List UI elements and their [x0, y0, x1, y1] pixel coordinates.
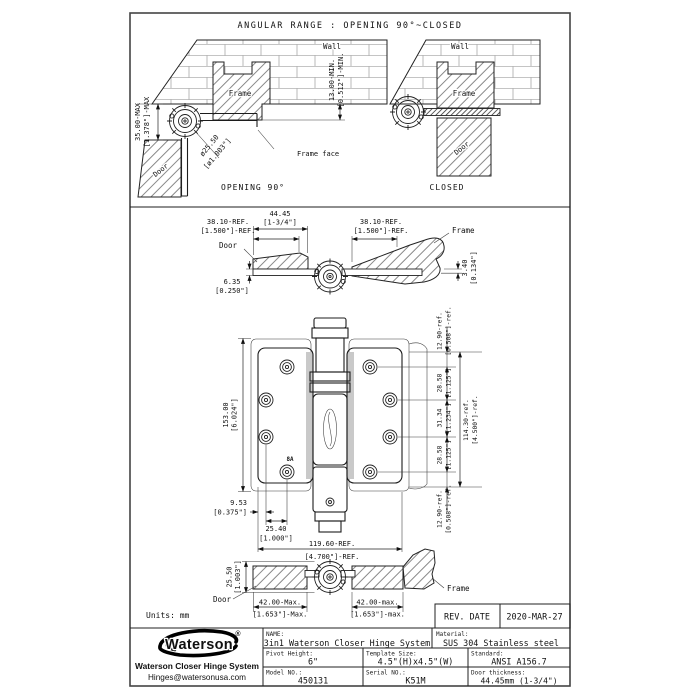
dim-35-in: [1.378"]-MAX — [143, 96, 151, 147]
dim-2540-mm: 25.40 — [265, 525, 286, 533]
dim-635-in: [0.250"] — [215, 287, 249, 295]
pivot-height-label: Pivot Height: — [266, 651, 313, 658]
barrel-gap-right — [347, 352, 354, 479]
frame-leaf-arm — [342, 269, 422, 276]
dim-42R-in: [1.653"]-max. — [350, 611, 405, 619]
dim-11960-mm: 119.60-REF. — [309, 540, 355, 548]
door-label: Door — [213, 595, 232, 604]
door-edge-closed — [424, 109, 500, 116]
dim-row3-mm: 28.58 — [437, 445, 444, 464]
dim-11960-in: [4.700"]-REF. — [305, 553, 360, 561]
door-label-plan: Door — [219, 241, 238, 250]
rev-date-value: 2020-MAR-27 — [506, 613, 562, 623]
frame-label-plan: Frame — [452, 226, 475, 235]
dim-2540-in: [1.000"] — [259, 535, 293, 543]
name-label: NAME: — [266, 631, 284, 638]
dim-2550-in: [1.003"] — [234, 560, 242, 594]
hinge-technical-drawing: ANGULAR RANGE : OPENING 90°~CLOSED Wall … — [0, 0, 700, 700]
serial-no-value: K51M — [405, 676, 425, 686]
dim-635-mm: 6.35 — [224, 278, 241, 286]
frame-face-label: Frame face — [297, 150, 339, 158]
wall-label: Wall — [323, 42, 341, 51]
name-value: 3in1 Waterson Closer Hinge System — [264, 638, 430, 648]
dim-3810R-in: [1.500"]-REF. — [354, 227, 409, 235]
dim-35-mm: 35.00-MAX — [134, 102, 142, 141]
dim-botref-mm: 12.90-ref. — [437, 490, 444, 528]
material-label: Material: — [436, 631, 469, 638]
door-thickness-value: 44.45mm (1-3/4") — [480, 677, 557, 686]
dim-13-mm: 13.00-MIN. — [328, 59, 336, 101]
frame-leaf-section — [352, 566, 403, 589]
frame-leaf-arm — [341, 571, 355, 578]
dim-153-mm: 153.00 — [222, 402, 230, 427]
door-leaf-arm — [253, 269, 318, 276]
dim-953-in: [0.375"] — [213, 509, 247, 517]
template-size-value: 4.5"(H)x4.5"(W) — [378, 657, 454, 667]
serial-no-label: Serial NO.: — [366, 670, 406, 677]
company-name: Waterson Closer Hinge System — [135, 661, 259, 671]
frame-label: Frame — [453, 89, 476, 98]
dim-span-in: [4.500"]-ref. — [472, 395, 479, 444]
dim-row3-in: [1.125"] — [446, 440, 453, 470]
dim-2550-mm: 25.50 — [226, 566, 234, 587]
company-email: Hinges@watersonusa.com — [148, 673, 246, 682]
frame-label: Frame — [229, 89, 252, 98]
panel-title: ANGULAR RANGE : OPENING 90°~CLOSED — [238, 21, 463, 31]
model-no-value: 450131 — [298, 676, 328, 686]
dim-3810R-mm: 38.10-REF. — [360, 218, 402, 226]
material-value: SUS 304 Stainless steel — [443, 638, 559, 648]
rev-date-label: REV. DATE — [444, 613, 490, 623]
dim-4445-mm: 44.45 — [269, 210, 290, 218]
units-note: Units: mm — [146, 611, 190, 620]
drawing-sheet-page: ANGULAR RANGE : OPENING 90°~CLOSED Wall … — [0, 0, 700, 700]
dim-topref-mm: 12.90-ref. — [437, 312, 444, 350]
dim-42L-mm: 42.00-Max. — [259, 599, 301, 607]
dim-340-in: [0.134"] — [470, 251, 478, 285]
dim-42L-in: [1.653"]-Max. — [253, 611, 308, 619]
wall-label: Wall — [451, 42, 469, 51]
dim-row2-in: [1.234"] — [446, 403, 453, 433]
opening-90-caption: OPENING 90° — [221, 183, 285, 192]
barrel-gap-left — [306, 352, 313, 479]
registered-mark-icon: ® — [235, 630, 241, 638]
dim-42R-mm: 42.00-max. — [356, 599, 398, 607]
dim-span-mm: 114.30-ref. — [463, 399, 470, 441]
standard-value: ANSI A156.7 — [491, 657, 546, 667]
logo-wordmark: Waterson — [165, 637, 233, 653]
dim-row2-mm: 31.34 — [437, 408, 444, 427]
gauge-tag: 8A — [287, 457, 294, 463]
dim-3810L-mm: 38.10-REF. — [207, 218, 249, 226]
door-section-plan — [253, 566, 307, 589]
model-no-label: Model NO.: — [266, 670, 302, 677]
dim-13-in: [0.512"]-MIN. — [337, 53, 345, 108]
dim-botref-in: [0.508"]-ref. — [446, 484, 453, 533]
dim-row1-in: [1.125"] — [446, 368, 453, 398]
pivot-height-value: 6" — [308, 657, 318, 667]
dim-153-in: [6.024"] — [231, 398, 239, 432]
dim-340-mm: 3.40 — [461, 260, 469, 277]
door-thickness-label: Door thickness: — [471, 670, 525, 677]
dim-row1-mm: 28.58 — [437, 373, 444, 392]
closed-caption: CLOSED — [430, 183, 465, 192]
frame-label: Frame — [447, 584, 470, 593]
dim-4445-in: [1-3/4"] — [263, 219, 297, 227]
dim-topref-in: [0.508"]-ref. — [446, 306, 453, 355]
dim-3810L-in: [1.500"]-REF. — [201, 227, 256, 235]
dim-953-mm: 9.53 — [230, 499, 247, 507]
